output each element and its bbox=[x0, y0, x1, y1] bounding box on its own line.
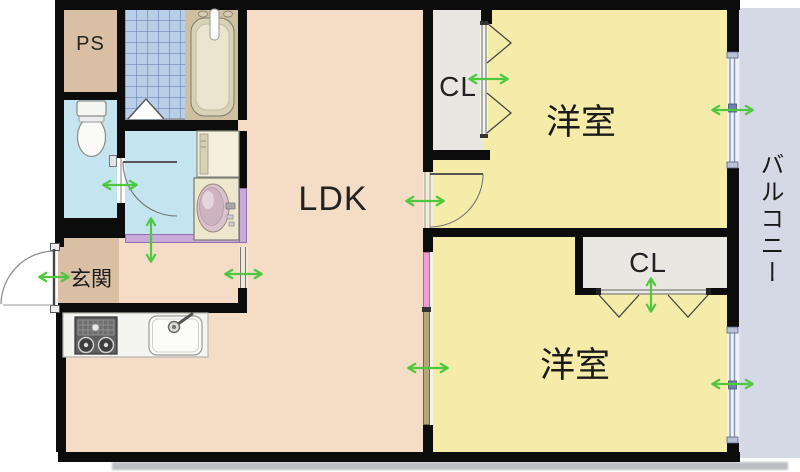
label-entry: 玄関 bbox=[61, 263, 121, 293]
drop-shadow bbox=[112, 462, 788, 470]
wall-segment bbox=[55, 218, 125, 238]
entrance-door-swing bbox=[1, 249, 54, 305]
washroom-partition-wall bbox=[239, 188, 247, 243]
label-bedroom-top: 洋室 bbox=[521, 94, 641, 145]
sliding-door-pocket bbox=[423, 310, 430, 425]
washroom-partition-wall bbox=[125, 234, 247, 243]
label-closet-top: CL bbox=[433, 71, 483, 103]
bathtub-surround bbox=[185, 8, 238, 120]
wall-segment bbox=[117, 100, 125, 158]
label-balcony: バルコニー bbox=[752, 134, 787, 304]
wall-segment bbox=[55, 92, 117, 100]
sliding-door-stop bbox=[422, 307, 431, 312]
wall-segment bbox=[727, 443, 739, 452]
label-closet-bottom: CL bbox=[598, 247, 698, 279]
label-bedroom-bottom: 洋室 bbox=[515, 337, 635, 388]
wall-segment bbox=[55, 0, 64, 247]
wall-segment bbox=[238, 288, 247, 313]
bathroom-tile-floor bbox=[125, 8, 185, 120]
wall-segment bbox=[55, 0, 740, 10]
wall-segment bbox=[428, 228, 739, 237]
wall-segment bbox=[56, 305, 66, 452]
wall-segment bbox=[238, 131, 247, 192]
wall-segment bbox=[58, 452, 740, 462]
wall-segment bbox=[575, 288, 599, 295]
doorway-fill bbox=[423, 172, 433, 228]
sliding-door-panel bbox=[423, 252, 430, 310]
floor-plan: PS LDK CL CL 洋室 洋室 玄関 バルコニー bbox=[0, 0, 800, 472]
door-handle bbox=[109, 155, 117, 167]
wall-segment bbox=[708, 288, 727, 295]
wall-segment bbox=[423, 8, 433, 172]
wall-segment bbox=[117, 203, 125, 218]
door-jamb bbox=[50, 243, 60, 251]
wall-segment bbox=[238, 8, 247, 120]
door-jamb bbox=[50, 305, 60, 313]
label-ldk: LDK bbox=[283, 180, 383, 219]
wall-segment bbox=[423, 150, 490, 160]
wall-segment bbox=[117, 120, 238, 131]
doorway-fill bbox=[239, 247, 248, 288]
wall-segment bbox=[423, 425, 433, 452]
wall-segment bbox=[727, 0, 739, 52]
washroom-floor bbox=[125, 131, 238, 235]
doorway-fill bbox=[117, 158, 125, 203]
wall-segment bbox=[727, 168, 739, 327]
wall-segment bbox=[58, 303, 247, 313]
label-ps: PS bbox=[64, 33, 117, 56]
wall-segment bbox=[575, 237, 583, 295]
wall-segment bbox=[481, 8, 492, 24]
